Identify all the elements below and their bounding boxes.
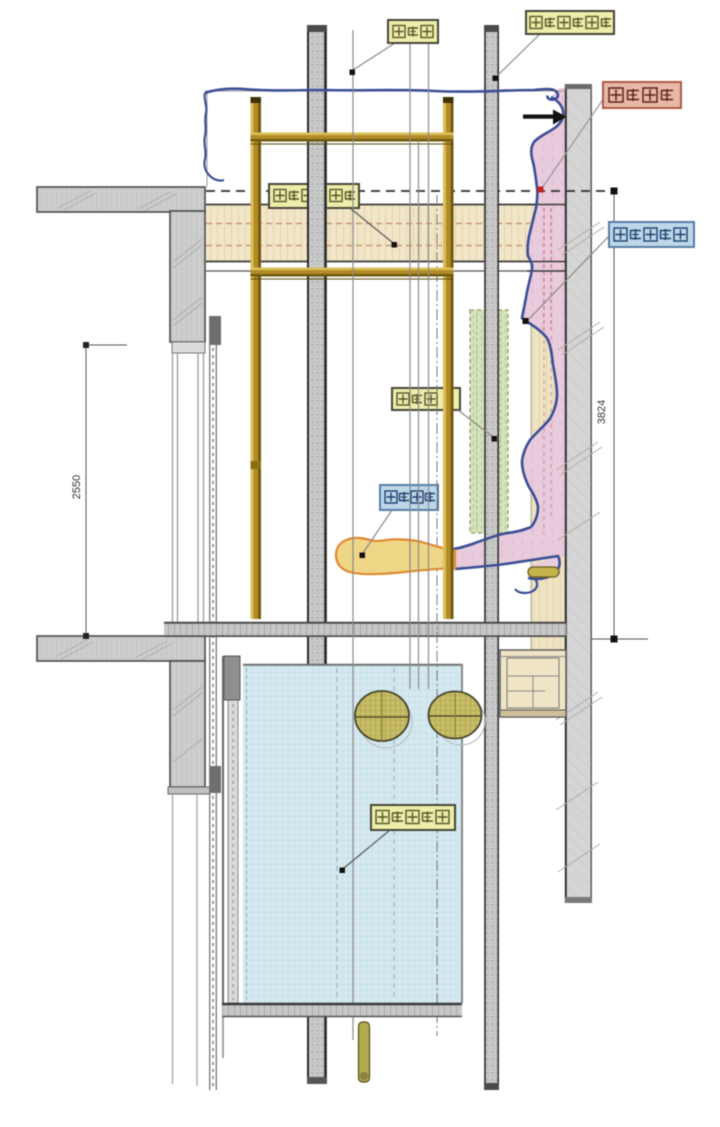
svg-text:2550: 2550 (71, 475, 83, 499)
svg-text:3824: 3824 (596, 400, 608, 424)
